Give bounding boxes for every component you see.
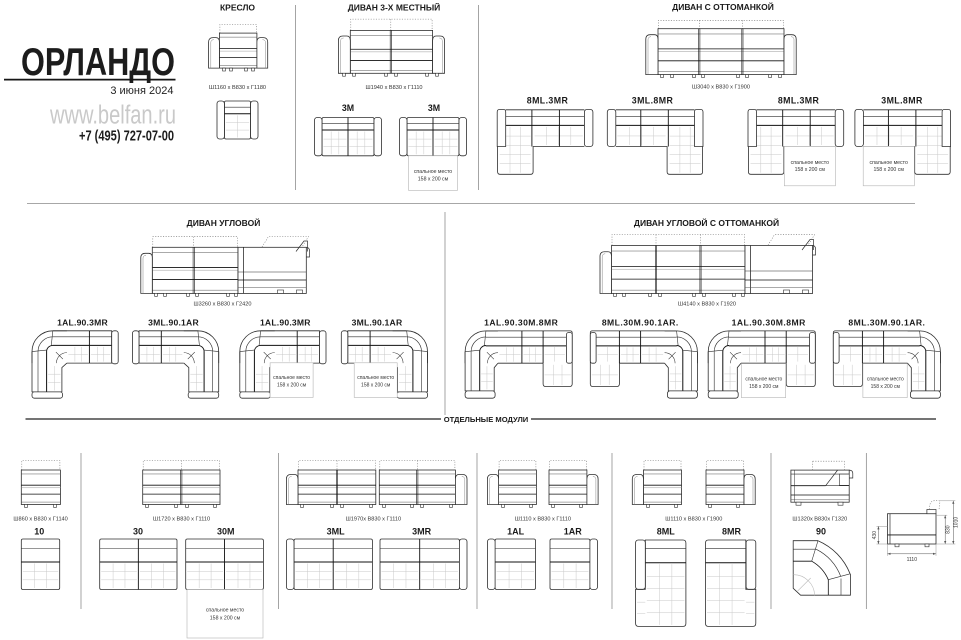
svg-text:830: 830: [946, 525, 952, 534]
svg-text:430: 430: [872, 531, 878, 540]
svg-text:спальное место: спальное место: [273, 375, 310, 381]
svg-text:3ML: 3ML: [327, 527, 346, 537]
svg-text:1010: 1010: [954, 517, 960, 528]
svg-text:спальное место: спальное место: [414, 169, 452, 175]
svg-text:10: 10: [34, 527, 44, 537]
svg-text:1AR: 1AR: [564, 527, 583, 537]
svg-text:3 июня 2024: 3 июня 2024: [110, 85, 173, 97]
svg-text:спальное место: спальное место: [745, 377, 782, 383]
svg-text:8ML.3MR: 8ML.3MR: [527, 96, 569, 106]
svg-text:Ш1720 х В830 х Г1110: Ш1720 х В830 х Г1110: [153, 517, 210, 523]
svg-text:158 х 200 см: 158 х 200 см: [418, 176, 449, 182]
svg-text:1AL.90.3MR: 1AL.90.3MR: [57, 318, 108, 328]
svg-text:158 х 200 см: 158 х 200 см: [361, 383, 391, 389]
svg-text:158 х 200 см: 158 х 200 см: [871, 384, 901, 390]
svg-text:158 х 200 см: 158 х 200 см: [277, 383, 307, 389]
svg-text:8ML.3MR: 8ML.3MR: [778, 96, 820, 106]
svg-text:Ш1110 х В830 х Г1900: Ш1110 х В830 х Г1900: [665, 517, 722, 523]
svg-text:1AL.90.30M.8MR: 1AL.90.30M.8MR: [732, 318, 806, 328]
svg-text:+7 (495) 727-07-00: +7 (495) 727-07-00: [79, 129, 174, 145]
svg-text:www.belfan.ru: www.belfan.ru: [49, 102, 176, 130]
svg-text:спальное место: спальное место: [357, 375, 394, 381]
svg-text:Ш1160 х В830 х Г1180: Ш1160 х В830 х Г1180: [209, 85, 266, 91]
svg-text:3MR: 3MR: [412, 527, 432, 537]
svg-text:спальное место: спальное место: [870, 160, 908, 166]
svg-text:3ML.8MR: 3ML.8MR: [632, 96, 674, 106]
svg-text:8ML.30M.90.1AR.: 8ML.30M.90.1AR.: [848, 318, 925, 328]
svg-text:спальное место: спальное место: [791, 160, 829, 166]
svg-text:158 х 200 см: 158 х 200 см: [210, 616, 241, 622]
svg-text:3ML.90.1AR: 3ML.90.1AR: [148, 318, 199, 328]
svg-text:Ш4140 х В830 х Г1920: Ш4140 х В830 х Г1920: [678, 302, 736, 308]
svg-text:Ш1110 х В830 х Г1110: Ш1110 х В830 х Г1110: [515, 517, 571, 523]
svg-text:ДИВАН УГЛОВОЙ: ДИВАН УГЛОВОЙ: [187, 217, 261, 228]
svg-text:ОТДЕЛЬНЫЕ МОДУЛИ: ОТДЕЛЬНЫЕ МОДУЛИ: [444, 415, 529, 424]
svg-text:Ш3260 х В830 х Г2420: Ш3260 х В830 х Г2420: [194, 302, 252, 308]
svg-text:158 х 200 см: 158 х 200 см: [749, 384, 779, 390]
svg-text:Ш3040 х В830 х Г1900: Ш3040 х В830 х Г1900: [692, 85, 750, 91]
svg-text:1AL: 1AL: [507, 527, 525, 537]
svg-text:Ш860 х В830 х Г1140: Ш860 х В830 х Г1140: [13, 517, 67, 523]
svg-text:30М: 30М: [217, 527, 235, 537]
svg-text:Ш1970х В830 х Г1110: Ш1970х В830 х Г1110: [346, 517, 402, 523]
svg-text:ДИВАН С ОТТОМАНКОЙ: ДИВАН С ОТТОМАНКОЙ: [672, 1, 774, 12]
svg-text:8MR: 8MR: [722, 527, 742, 537]
svg-text:3М: 3М: [342, 103, 354, 113]
svg-text:3М: 3М: [428, 103, 440, 113]
svg-text:ОРЛАНДО: ОРЛАНДО: [21, 41, 175, 84]
svg-text:3ML.8MR: 3ML.8MR: [881, 96, 923, 106]
svg-text:1110: 1110: [907, 557, 918, 563]
svg-text:КРЕСЛО: КРЕСЛО: [220, 3, 255, 13]
svg-text:спальное место: спальное место: [867, 377, 904, 383]
svg-text:3ML.90.1AR: 3ML.90.1AR: [352, 318, 403, 328]
svg-text:90: 90: [816, 527, 826, 537]
svg-text:ДИВАН 3-Х МЕСТНЫЙ: ДИВАН 3-Х МЕСТНЫЙ: [348, 2, 441, 13]
svg-text:Ш1940 х В830 х Г1110: Ш1940 х В830 х Г1110: [365, 85, 422, 91]
svg-text:Ш1320х В830х Г1320: Ш1320х В830х Г1320: [792, 517, 847, 523]
svg-text:158 х 200 см: 158 х 200 см: [795, 167, 826, 173]
svg-text:1AL.90.3MR: 1AL.90.3MR: [260, 318, 311, 328]
svg-text:158 х 200 см: 158 х 200 см: [874, 167, 905, 173]
svg-text:30: 30: [133, 527, 143, 537]
svg-text:8ML.30M.90.1AR.: 8ML.30M.90.1AR.: [602, 318, 679, 328]
svg-text:1AL.90.30M.8MR: 1AL.90.30M.8MR: [484, 318, 558, 328]
svg-text:ДИВАН УГЛОВОЙ С ОТТОМАНКОЙ: ДИВАН УГЛОВОЙ С ОТТОМАНКОЙ: [634, 217, 779, 228]
svg-text:спальное место: спальное место: [206, 608, 244, 614]
svg-text:8ML: 8ML: [657, 527, 676, 537]
